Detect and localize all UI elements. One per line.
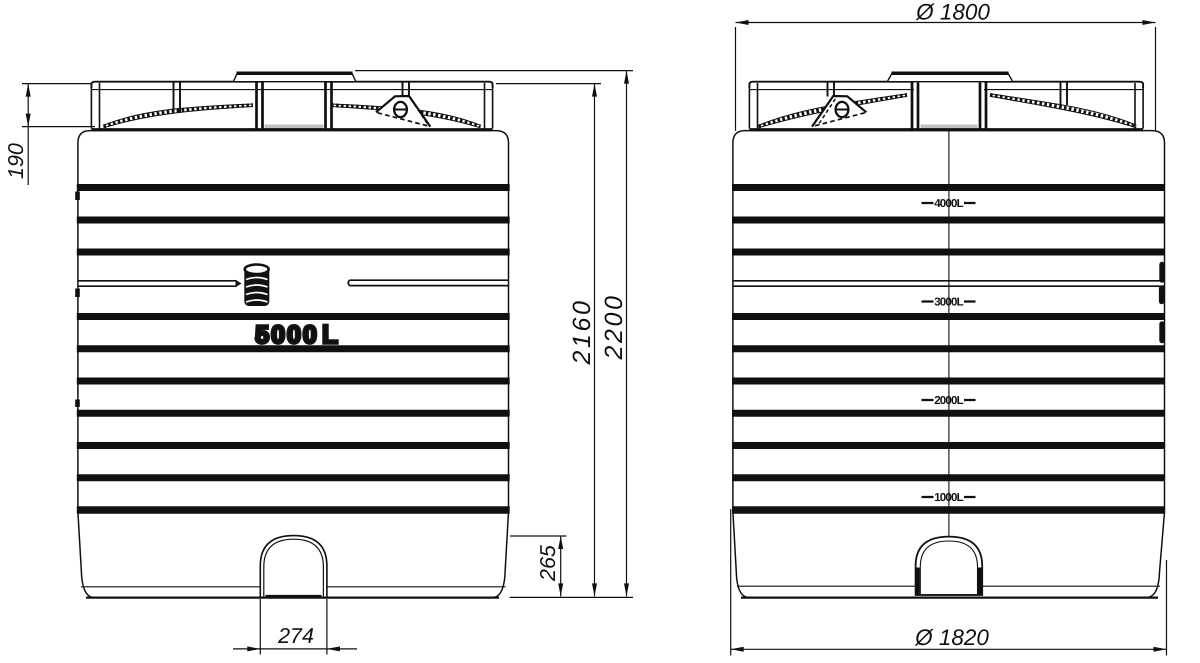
svg-text:1000L: 1000L [934,492,963,504]
svg-text:4000L: 4000L [934,198,963,210]
svg-text:Ø 1820: Ø 1820 [914,625,989,650]
svg-text:2160: 2160 [568,298,596,365]
svg-text:Ø 1800: Ø 1800 [915,0,990,25]
svg-text:265: 265 [536,544,560,582]
svg-text:L: L [322,320,339,350]
svg-text:5000: 5000 [255,321,319,349]
svg-text:190: 190 [4,143,28,179]
svg-text:2200: 2200 [600,293,628,360]
svg-text:274: 274 [277,624,314,648]
svg-text:3000L: 3000L [934,297,963,309]
svg-text:2000L: 2000L [934,395,963,407]
